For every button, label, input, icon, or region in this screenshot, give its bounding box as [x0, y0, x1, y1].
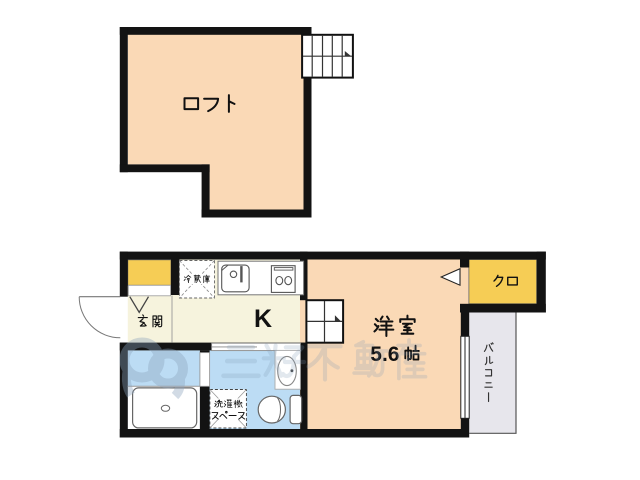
svg-text:K: K: [254, 305, 272, 333]
